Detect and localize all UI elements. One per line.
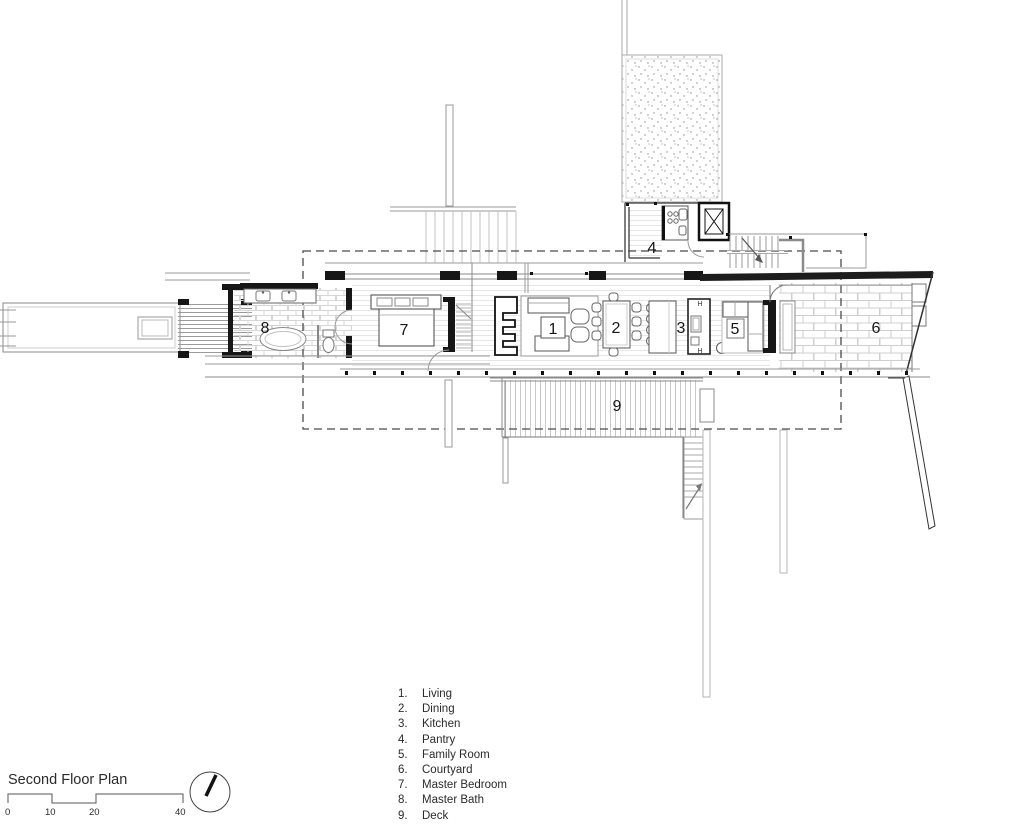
legend-item-family-room: 5.Family Room <box>398 748 507 763</box>
legend-number: 5. <box>398 748 412 763</box>
scale-label-20: 20 <box>89 807 100 818</box>
legend-label: Living <box>422 688 452 700</box>
room-legend: 1.Living 2.Dining 3.Kitchen 4.Pantry 5.F… <box>398 687 507 824</box>
site-rails <box>703 430 787 697</box>
north-wall <box>325 263 703 280</box>
scale-label-10: 10 <box>45 807 56 818</box>
room-number-courtyard: 6 <box>872 320 881 337</box>
legend-number: 8. <box>398 793 412 808</box>
legend-item-deck: 9.Deck <box>398 809 507 824</box>
legend-label: Deck <box>422 810 448 822</box>
north-arrow-icon <box>190 772 230 812</box>
legend-item-courtyard: 6.Courtyard <box>398 763 507 778</box>
gravel-roof <box>622 55 722 202</box>
legend-item-master-bath: 8.Master Bath <box>398 793 507 808</box>
legend-number: 2. <box>398 702 412 717</box>
legend-item-living: 1.Living <box>398 687 507 702</box>
lap-pool <box>0 303 180 352</box>
legend-item-master-bedroom: 7.Master Bedroom <box>398 778 507 793</box>
elevator-icon <box>699 203 729 240</box>
legend-number: 7. <box>398 778 412 793</box>
toilet-icon <box>323 330 334 353</box>
legend-number: 9. <box>398 809 412 824</box>
kitchen-h-label-top: H <box>697 301 702 308</box>
upper-stair-icon <box>726 233 867 272</box>
room-number-family-room: 5 <box>731 321 740 338</box>
living-room <box>521 296 598 356</box>
site-wall-angled <box>888 376 935 529</box>
room-number-living: 1 <box>549 321 558 338</box>
scale-label-0: 0 <box>5 807 10 818</box>
legend-label: Master Bedroom <box>422 779 507 791</box>
legend-item-dining: 2.Dining <box>398 702 507 717</box>
legend-number: 1. <box>398 687 412 702</box>
room-number-master-bath: 8 <box>261 320 270 337</box>
room-number-dining: 2 <box>612 320 621 337</box>
legend-number: 3. <box>398 717 412 732</box>
scale-bar: 0 10 20 40 <box>5 794 186 818</box>
floor-plan-drawing: H H <box>0 0 1024 835</box>
site-lines <box>165 0 627 280</box>
legend-number: 6. <box>398 763 412 778</box>
legend-label: Family Room <box>422 749 490 761</box>
scale-label-40: 40 <box>175 807 186 818</box>
floor-plan-sheet: H H <box>0 0 1024 835</box>
legend-label: Pantry <box>422 734 455 746</box>
kitchen-h-label-bottom: H <box>697 348 702 355</box>
legend-label: Kitchen <box>422 718 460 730</box>
legend-item-pantry: 4.Pantry <box>398 733 507 748</box>
legend-label: Courtyard <box>422 764 473 776</box>
legend-label: Dining <box>422 703 455 715</box>
drawing-title: Second Floor Plan <box>8 772 127 788</box>
room-number-master-bedroom: 7 <box>400 322 409 339</box>
room-number-kitchen: 3 <box>677 320 686 337</box>
legend-item-kitchen: 3.Kitchen <box>398 717 507 732</box>
room-number-pantry: 4 <box>648 240 657 257</box>
lower-stair-icon <box>684 437 704 519</box>
room-number-deck: 9 <box>613 398 622 415</box>
legend-number: 4. <box>398 733 412 748</box>
legend-label: Master Bath <box>422 794 484 806</box>
